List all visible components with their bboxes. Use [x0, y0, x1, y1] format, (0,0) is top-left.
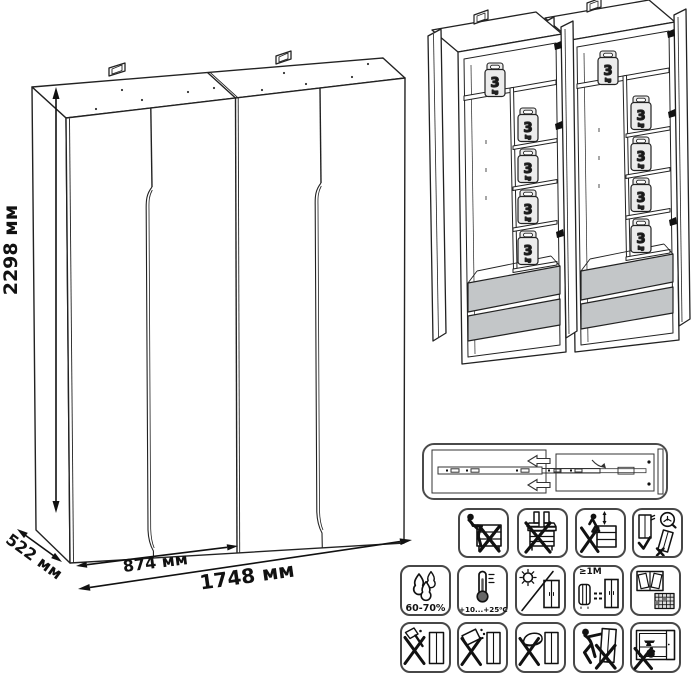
- no-heavy-load-icon: [630, 622, 681, 673]
- temperature-label: +10...+25⁰C: [459, 606, 506, 613]
- no-standing-icon: [517, 508, 568, 558]
- no-abrasives-icon: [515, 622, 566, 673]
- mesh-grid: [655, 594, 674, 609]
- keep-distance-from-heat-icon: ≥1М: [573, 565, 624, 616]
- furniture-technical-diagram: 3 kg: [0, 0, 700, 679]
- drawer-slide-diagram: [422, 443, 668, 500]
- radiator-icon: [579, 585, 590, 605]
- pull-direction-arrow: [528, 456, 550, 467]
- wardrobe-front-view: [32, 51, 405, 563]
- no-dragging-icon: [573, 622, 624, 673]
- no-solvents-icon: [400, 622, 451, 673]
- temperature-icon: +10...+25⁰C: [457, 565, 508, 616]
- sun-icon: [524, 573, 533, 582]
- checkmark: [639, 538, 650, 549]
- screw-dot: [647, 482, 650, 485]
- height-label: 2298 мм: [0, 205, 22, 296]
- wardrobe-open-view: [428, 0, 690, 364]
- screw-dot: [647, 460, 650, 463]
- pull-direction-arrow: [528, 480, 550, 491]
- wall-bracket-icon: [109, 63, 125, 76]
- care-instructions-panel: 60-70% +10...+25⁰C: [395, 440, 700, 679]
- no-direct-sunlight-icon: [515, 565, 566, 616]
- no-sitting-icon: [458, 508, 509, 558]
- secure-to-wall-icon: [632, 508, 683, 558]
- total-width-label: 1748 мм: [198, 558, 296, 595]
- heat-distance-label: ≥1М: [579, 568, 602, 577]
- no-climbing-icon: [575, 508, 626, 558]
- humidity-label: 60-70%: [402, 604, 449, 614]
- wall-bracket-icon: [276, 51, 291, 64]
- humidity-icon: 60-70%: [400, 565, 451, 616]
- anvil-icon: [644, 641, 655, 647]
- wardrobe-left-side: [32, 87, 70, 563]
- door-gap: [320, 88, 321, 183]
- ventilation-icon: [630, 565, 681, 616]
- no-liquids-icon: [457, 622, 508, 673]
